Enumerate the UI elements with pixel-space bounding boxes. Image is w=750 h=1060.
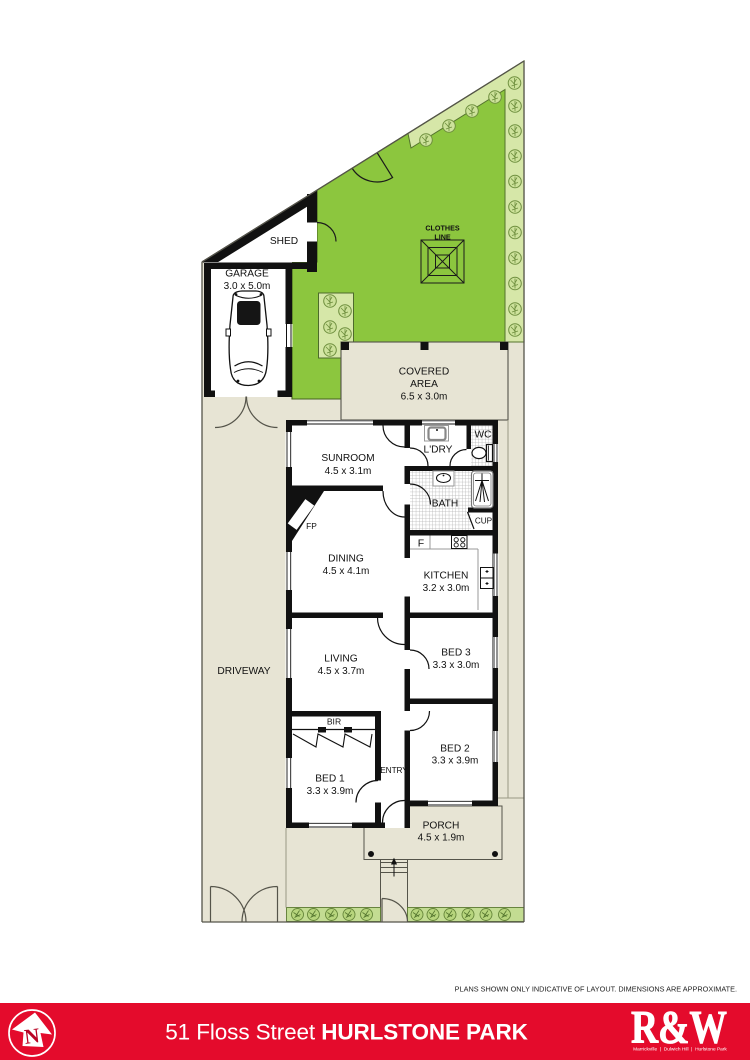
svg-text:SUNROOM: SUNROOM — [321, 453, 374, 464]
svg-text:3.3 x 3.9m: 3.3 x 3.9m — [307, 786, 354, 797]
svg-text:F: F — [418, 538, 424, 550]
svg-text:4.5 x 3.7m: 4.5 x 3.7m — [318, 666, 365, 677]
svg-text:R&W: R&W — [631, 1002, 727, 1054]
svg-text:N: N — [23, 1023, 41, 1049]
svg-text:BED 3: BED 3 — [441, 648, 471, 659]
svg-text:3.2 x 3.0m: 3.2 x 3.0m — [423, 583, 470, 594]
svg-text:4.5 x 4.1m: 4.5 x 4.1m — [323, 566, 370, 577]
svg-text:FP: FP — [306, 521, 317, 531]
svg-text:DRIVEWAY: DRIVEWAY — [217, 666, 270, 677]
svg-text:CUP: CUP — [475, 517, 493, 526]
svg-text:BED 1: BED 1 — [315, 774, 345, 785]
svg-text:Marrickville | Dulwich Hill: Marrickville | Dulwich Hill | Hurlstone … — [633, 1047, 727, 1053]
svg-text:AREA: AREA — [410, 379, 438, 390]
svg-text:4.5 x 3.1m: 4.5 x 3.1m — [325, 466, 372, 477]
svg-text:WC: WC — [475, 430, 492, 441]
svg-text:BED 2: BED 2 — [440, 744, 470, 755]
svg-text:SHED: SHED — [270, 236, 298, 247]
svg-text:3.3 x 3.0m: 3.3 x 3.0m — [433, 660, 480, 671]
svg-text:BATH: BATH — [432, 499, 458, 510]
svg-text:BIR: BIR — [327, 717, 341, 727]
svg-text:3.3 x 3.9m: 3.3 x 3.9m — [432, 756, 479, 767]
svg-text:COVERED: COVERED — [399, 367, 449, 378]
svg-text:CLOTHES: CLOTHES — [425, 224, 460, 233]
svg-text:L'DRY: L'DRY — [424, 445, 453, 456]
svg-text:PORCH: PORCH — [423, 821, 460, 832]
svg-text:GARAGE: GARAGE — [225, 269, 269, 280]
svg-text:6.5 x 3.0m: 6.5 x 3.0m — [401, 392, 448, 403]
svg-text:ENTRY: ENTRY — [380, 765, 408, 775]
svg-text:KITCHEN: KITCHEN — [424, 571, 469, 582]
svg-text:DINING: DINING — [328, 554, 364, 565]
svg-text:LINE: LINE — [434, 233, 451, 242]
svg-text:51 Floss Street HURLSTONE PARK: 51 Floss Street HURLSTONE PARK — [165, 1020, 528, 1045]
svg-text:LIVING: LIVING — [324, 654, 357, 665]
svg-text:PLANS SHOWN ONLY INDICATIVE OF: PLANS SHOWN ONLY INDICATIVE OF LAYOUT. D… — [455, 985, 737, 994]
svg-text:4.5 x 1.9m: 4.5 x 1.9m — [418, 833, 465, 844]
